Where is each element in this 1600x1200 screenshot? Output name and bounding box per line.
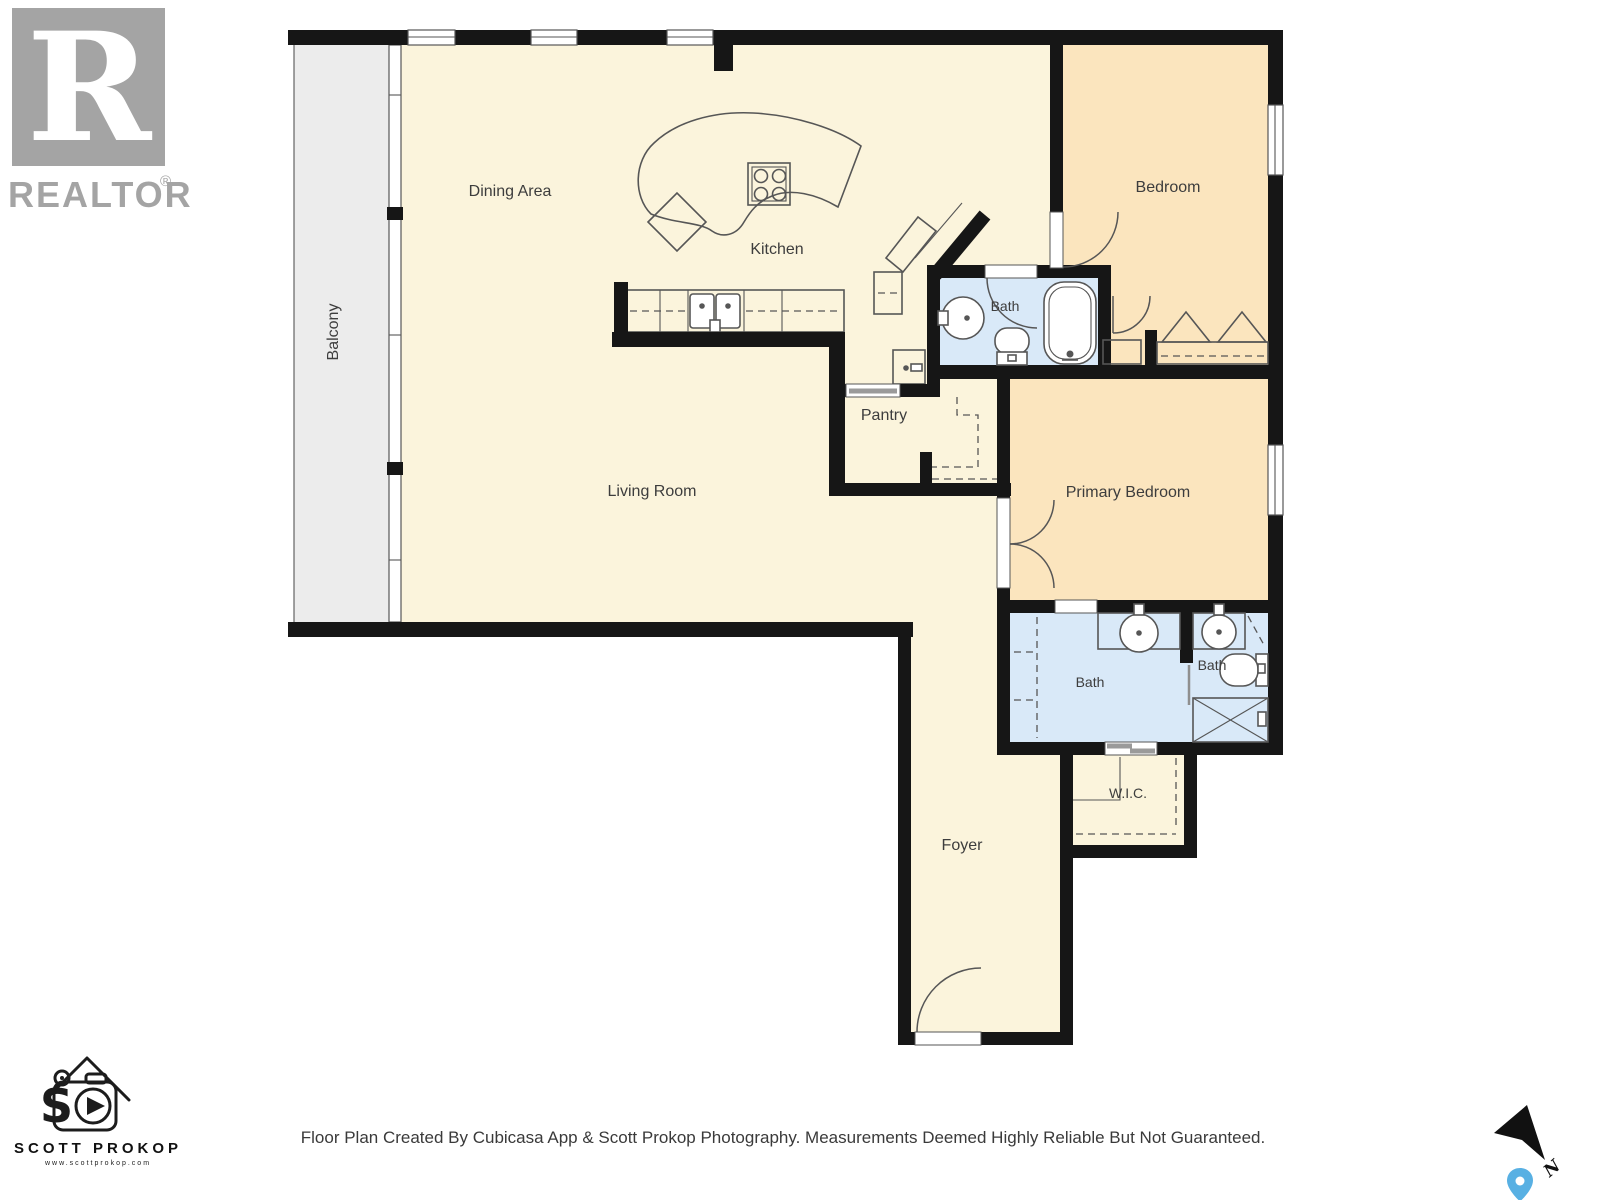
door-leaf: [985, 265, 1037, 278]
wall: [612, 332, 845, 347]
wall: [1184, 742, 1197, 858]
photographer-name: SCOTT PROKOP: [14, 1140, 182, 1157]
drain-dot: [1136, 630, 1142, 636]
wall: [714, 45, 733, 71]
toilet-bowl-icon: [995, 328, 1029, 354]
wall: [920, 452, 932, 496]
floor-plan-canvas: Balcony Dining Area Kitchen Living Room …: [0, 0, 1600, 1200]
wall: [1050, 45, 1063, 212]
photographer-website: www.scottprokop.com: [44, 1160, 151, 1167]
north-arrow-icon: [1494, 1105, 1545, 1160]
dishwasher-knob: [903, 365, 909, 371]
wall: [614, 282, 628, 340]
faucet-icon: [1134, 604, 1144, 615]
realtor-logo: R REALTOR ®: [8, 0, 193, 215]
realtor-logo-r: R: [27, 0, 153, 176]
camera-top-icon: [86, 1074, 106, 1083]
balcony-glass-wall: [387, 45, 403, 622]
wall: [1145, 330, 1157, 365]
glass-wall: [389, 45, 401, 622]
room-label-bath-top: Bath: [991, 298, 1020, 314]
shower-valve: [1258, 712, 1266, 726]
wall: [829, 332, 845, 496]
wall: [1098, 265, 1111, 379]
drain-dot: [699, 303, 705, 309]
wall: [927, 370, 940, 397]
map-pin-hole: [1516, 1177, 1525, 1186]
door-opening: [1055, 600, 1097, 613]
room-label-dining: Dining Area: [469, 183, 552, 200]
wall: [1180, 613, 1193, 663]
faucet-icon: [938, 311, 948, 325]
sp-letter-s: S: [40, 1079, 73, 1133]
wall: [1060, 845, 1197, 858]
drain-dot: [1216, 629, 1222, 635]
flush-button: [1258, 664, 1265, 673]
room-label-living: Living Room: [608, 483, 697, 500]
room-label-kitchen: Kitchen: [750, 241, 803, 258]
door-leaf: [997, 498, 1010, 588]
room-label-bath-second: Bath: [1198, 657, 1227, 673]
flush-button: [1008, 355, 1016, 361]
floor-plan-page: Balcony Dining Area Kitchen Living Room …: [0, 0, 1600, 1200]
room-label-primary-bedroom: Primary Bedroom: [1066, 484, 1190, 501]
wall: [898, 622, 911, 1045]
entry-door-leaf: [915, 1032, 981, 1045]
glass-mullion: [387, 462, 403, 475]
north-label: N: [1539, 1155, 1566, 1182]
compass: N: [1494, 1105, 1566, 1200]
room-label-foyer: Foyer: [942, 837, 984, 854]
drain-dot: [725, 303, 731, 309]
registered-mark-icon: ®: [160, 173, 171, 190]
tub-drain: [1067, 351, 1074, 358]
wall: [1060, 755, 1073, 1045]
wall: [288, 622, 913, 637]
wall: [927, 365, 1283, 379]
faucet-icon: [1214, 604, 1224, 615]
room-label-pantry: Pantry: [861, 407, 907, 424]
drain-dot: [964, 315, 970, 321]
room-label-balcony: Balcony: [325, 304, 342, 361]
door-leaf: [1050, 212, 1063, 268]
faucet-icon: [710, 320, 720, 332]
dishwasher-handle: [911, 364, 922, 371]
photographer-logo: S SCOTT PROKOP www.scottprokop.com: [14, 1058, 182, 1167]
room-label-bedroom: Bedroom: [1136, 179, 1201, 196]
play-icon: [87, 1097, 105, 1115]
room-label-bath-ensuite: Bath: [1076, 674, 1105, 690]
room-label-wic: W.I.C.: [1109, 785, 1147, 801]
footer-disclaimer: Floor Plan Created By Cubicasa App & Sco…: [301, 1128, 1265, 1147]
glass-mullion: [387, 207, 403, 220]
